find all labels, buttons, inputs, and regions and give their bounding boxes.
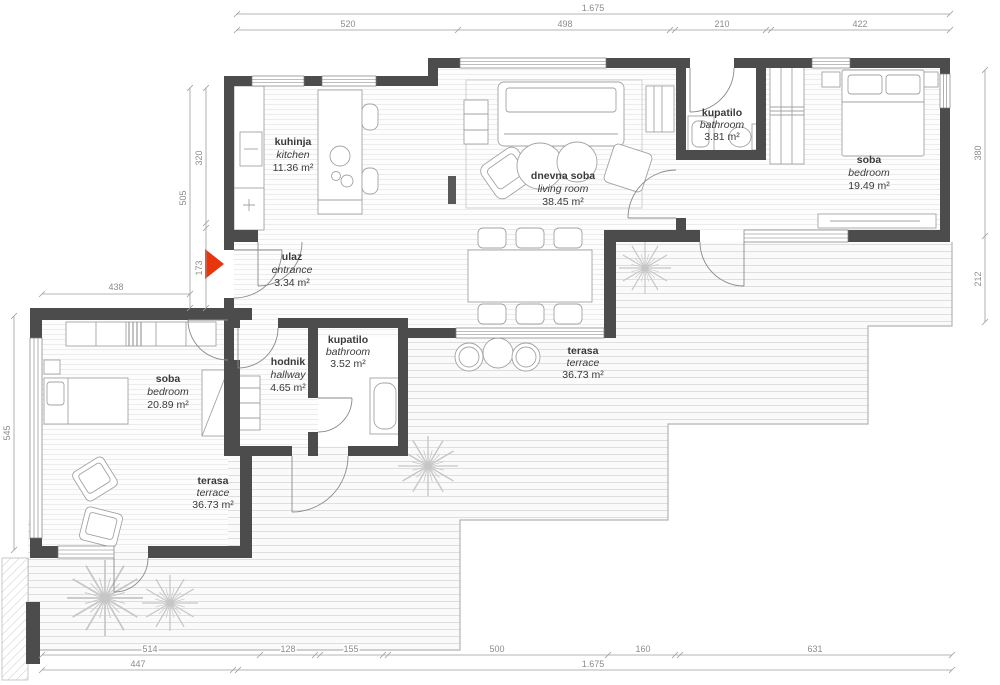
svg-text:living room: living room xyxy=(538,183,589,195)
dim-label: 422 xyxy=(852,19,867,29)
sofa xyxy=(498,82,624,146)
dim-label: 1.675 xyxy=(582,659,605,669)
dim-label: 505 xyxy=(178,190,188,205)
dining-chair xyxy=(516,304,544,324)
pillow xyxy=(886,75,920,94)
label-bathroom-1: kupatilo bathroom 3.81 m² xyxy=(700,107,745,143)
label-terrace-1: terasa terrace 36.73 m² xyxy=(562,345,604,381)
dining-table xyxy=(468,250,592,302)
shower xyxy=(370,378,400,434)
dim-label: 498 xyxy=(557,19,572,29)
dim-label: 500 xyxy=(489,644,504,654)
svg-text:soba: soba xyxy=(857,154,882,166)
bar-stool xyxy=(362,104,378,130)
kitchen-counter xyxy=(234,86,264,230)
nightstand xyxy=(924,72,938,87)
dim-label: 155 xyxy=(343,644,358,654)
window xyxy=(744,230,848,242)
svg-text:36.73 m²: 36.73 m² xyxy=(562,369,604,381)
terrace-seating xyxy=(455,338,540,371)
dining-chair xyxy=(516,228,544,248)
pillow xyxy=(848,75,882,94)
svg-text:11.36 m²: 11.36 m² xyxy=(273,162,314,174)
svg-text:kuhinja: kuhinja xyxy=(275,136,312,148)
svg-text:3.52 m²: 3.52 m² xyxy=(330,358,366,370)
label-bathroom-2: kupatilo bathroom 3.52 m² xyxy=(326,334,371,370)
svg-text:terasa: terasa xyxy=(198,475,229,487)
entrance-arrow-icon xyxy=(205,249,224,279)
tv-cabinet xyxy=(464,100,488,144)
svg-text:hodnik: hodnik xyxy=(271,356,306,368)
dim-label: 631 xyxy=(807,644,822,654)
svg-text:4.65 m²: 4.65 m² xyxy=(270,382,306,394)
dim-label: 128 xyxy=(280,644,295,654)
svg-text:bathroom: bathroom xyxy=(700,119,745,131)
svg-text:bedroom: bedroom xyxy=(147,386,189,398)
svg-text:3.81 m²: 3.81 m² xyxy=(704,131,740,143)
bar-stool xyxy=(362,168,378,194)
dim-label: 212 xyxy=(973,271,983,286)
svg-text:dnevna soba: dnevna soba xyxy=(531,170,595,182)
dim-label: 380 xyxy=(973,145,983,160)
dim-label: 320 xyxy=(194,150,204,165)
nightstand xyxy=(822,72,840,87)
dining-chair xyxy=(554,228,582,248)
svg-text:ulaz: ulaz xyxy=(282,251,302,263)
svg-text:kitchen: kitchen xyxy=(276,149,309,161)
svg-text:kupatilo: kupatilo xyxy=(328,334,368,346)
svg-text:entrance: entrance xyxy=(272,264,313,276)
side-table xyxy=(646,86,674,132)
svg-text:bathroom: bathroom xyxy=(326,346,371,358)
window xyxy=(30,338,42,538)
dim-label: 514 xyxy=(142,644,157,654)
dining-chair xyxy=(478,228,506,248)
svg-text:36.73 m²: 36.73 m² xyxy=(192,499,234,511)
dim-label: 210 xyxy=(714,19,729,29)
label-kitchen: kuhinja kitchen 11.36 m² xyxy=(273,136,314,174)
svg-text:terrace: terrace xyxy=(197,487,230,499)
svg-text:20.89 m²: 20.89 m² xyxy=(147,399,189,411)
svg-text:bedroom: bedroom xyxy=(848,167,890,179)
label-hallway: hodnik hallway 4.65 m² xyxy=(270,356,306,394)
svg-text:terrace: terrace xyxy=(567,357,600,369)
terrace-table xyxy=(483,338,513,368)
svg-text:3.34 m²: 3.34 m² xyxy=(274,277,310,289)
dining-chair xyxy=(554,304,582,324)
svg-text:kupatilo: kupatilo xyxy=(702,107,742,119)
svg-text:terasa: terasa xyxy=(568,345,599,357)
dim-label: 1.675 xyxy=(582,3,605,13)
dim-label: 545 xyxy=(2,425,12,440)
dim-label: 438 xyxy=(108,282,123,292)
dim-label: 160 xyxy=(635,644,650,654)
window xyxy=(322,76,376,86)
dim-label: 173 xyxy=(194,260,204,275)
svg-text:38.45 m²: 38.45 m² xyxy=(542,196,584,208)
window xyxy=(456,328,604,338)
dining-set xyxy=(468,228,592,324)
window xyxy=(58,546,114,558)
floor-plan-page: kuhinja kitchen 11.36 m² dnevna soba liv… xyxy=(0,0,1000,685)
window xyxy=(940,74,950,108)
dining-chair xyxy=(478,304,506,324)
window xyxy=(252,76,304,86)
window xyxy=(812,58,850,68)
tv xyxy=(448,176,456,204)
svg-text:19.49 m²: 19.49 m² xyxy=(848,180,890,192)
label-terrace-2: terasa terrace 36.73 m² xyxy=(192,475,234,511)
stairs-hatch xyxy=(2,558,28,680)
pillow xyxy=(47,382,64,405)
floor-plan-drawing: kuhinja kitchen 11.36 m² dnevna soba liv… xyxy=(0,0,1000,685)
nightstand xyxy=(44,360,60,374)
dim-label: 520 xyxy=(340,19,355,29)
svg-text:soba: soba xyxy=(156,373,181,385)
window xyxy=(460,58,606,68)
svg-text:hallway: hallway xyxy=(270,369,306,381)
dim-label: 447 xyxy=(130,659,145,669)
